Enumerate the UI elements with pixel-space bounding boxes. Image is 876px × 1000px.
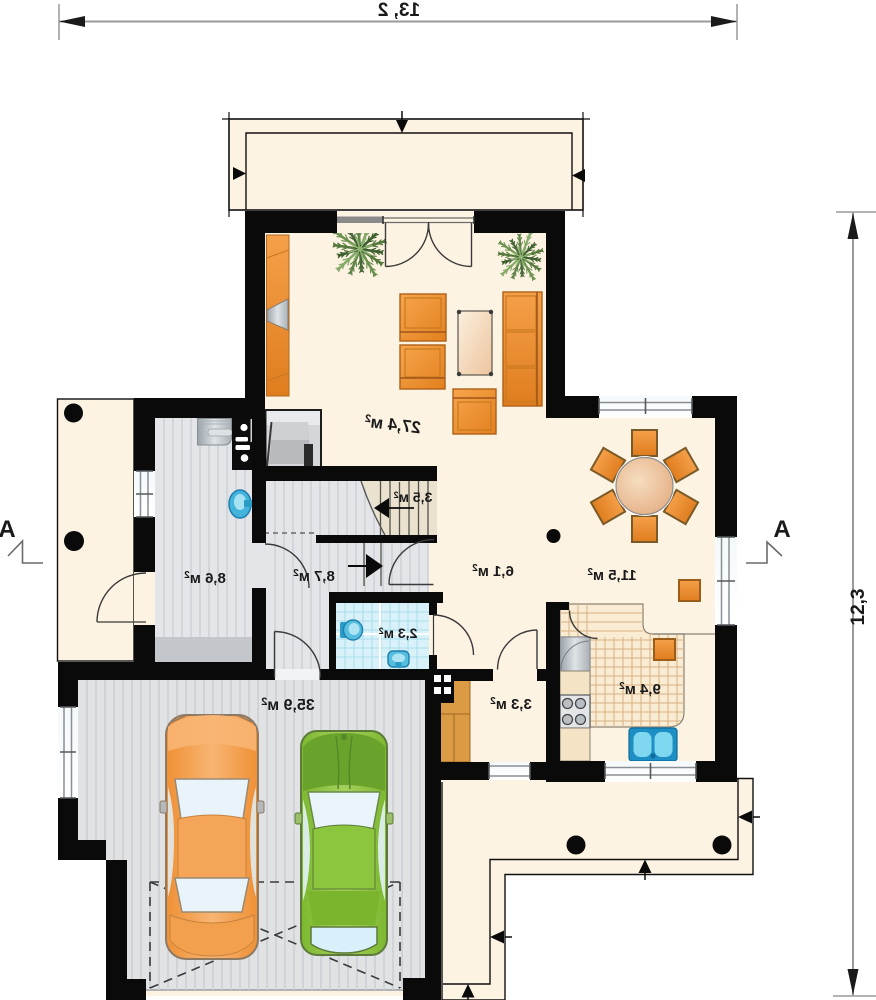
svg-text:6,1 м2: 6,1 м2 xyxy=(472,563,514,580)
svg-text:8,6 м2: 8,6 м2 xyxy=(184,570,226,587)
svg-text:13, 2: 13, 2 xyxy=(378,0,420,21)
svg-text:11,5 м2: 11,5 м2 xyxy=(587,567,637,584)
svg-text:A: A xyxy=(0,516,16,543)
svg-text:2,3 м2: 2,3 м2 xyxy=(379,625,418,641)
svg-text:35,9 м2: 35,9 м2 xyxy=(261,696,315,714)
svg-text:A: A xyxy=(773,516,790,543)
svg-text:8,7 м2: 8,7 м2 xyxy=(293,568,335,585)
svg-text:12,3: 12,3 xyxy=(848,589,869,626)
svg-text:3,5 м2: 3,5 м2 xyxy=(394,489,433,505)
svg-text:9,4 м2: 9,4 м2 xyxy=(619,681,661,698)
svg-text:3,3 м2: 3,3 м2 xyxy=(490,696,532,713)
